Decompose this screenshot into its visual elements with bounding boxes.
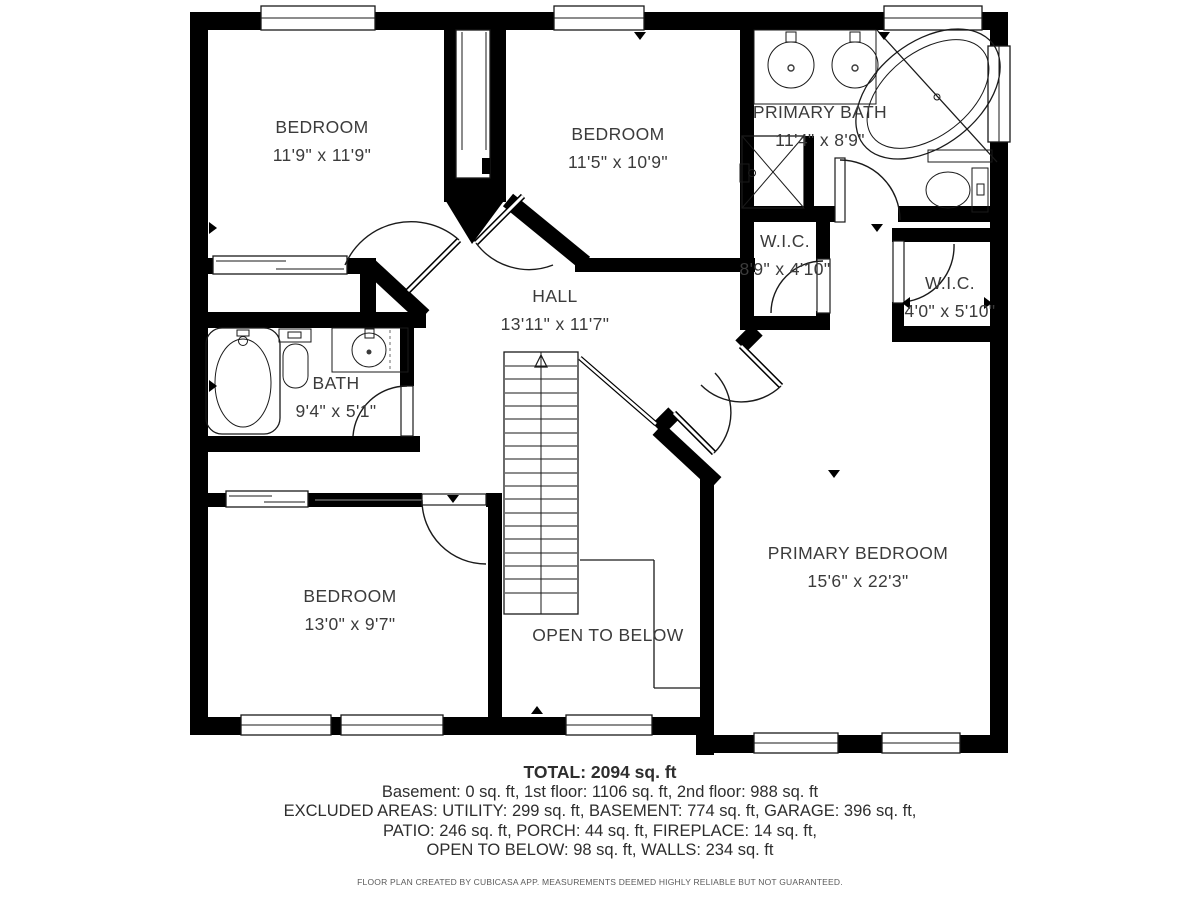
- room-name: PRIMARY BATH: [753, 98, 887, 126]
- window: [241, 715, 331, 735]
- window: [261, 6, 375, 30]
- room-name: BEDROOM: [568, 120, 668, 148]
- room-dims: 8'9" x 4'10": [739, 255, 830, 283]
- area-summary: TOTAL: 2094 sq. ft Basement: 0 sq. ft, 1…: [0, 763, 1200, 892]
- room-name: BATH: [296, 369, 377, 397]
- room-name: OPEN TO BELOW: [532, 621, 683, 649]
- door: [422, 494, 486, 564]
- room-dims: 13'0" x 9'7": [303, 610, 396, 638]
- excluded-areas-line-2: PATIO: 246 sq. ft, PORCH: 44 sq. ft, FIR…: [0, 822, 1200, 842]
- room-dims: 4'0" x 5'10": [904, 297, 995, 325]
- excluded-areas-line-1: EXCLUDED AREAS: UTILITY: 299 sq. ft, BAS…: [0, 802, 1200, 822]
- room-name: BEDROOM: [273, 113, 372, 141]
- room-name: W.I.C.: [904, 269, 995, 297]
- wall-channel: [456, 30, 490, 178]
- bathtub-figure: [206, 328, 280, 434]
- sliding-door: [213, 256, 347, 274]
- room-label-hall: HALL 13'11" x 11'7": [501, 282, 610, 338]
- room-label-bath: BATH 9'4" x 5'1": [296, 369, 377, 425]
- sink-figure: [332, 328, 408, 372]
- room-label-wic-1: W.I.C. 8'9" x 4'10": [739, 227, 830, 283]
- room-dims: 11'4" x 8'9": [753, 126, 887, 154]
- room-dims: 13'11" x 11'7": [501, 310, 610, 338]
- disclaimer-text: FLOOR PLAN CREATED BY CUBICASA APP. MEAS…: [0, 873, 1200, 893]
- room-dims: 15'6" x 22'3": [768, 567, 948, 595]
- toilet-figure: [926, 168, 988, 212]
- room-label-primary-bedroom: PRIMARY BEDROOM 15'6" x 22'3": [768, 539, 948, 595]
- window: [566, 715, 652, 735]
- sliding-door: [226, 491, 308, 507]
- window: [554, 6, 644, 30]
- window: [341, 715, 443, 735]
- room-dims: 9'4" x 5'1": [296, 397, 377, 425]
- floors-area-line: Basement: 0 sq. ft, 1st floor: 1106 sq. …: [0, 783, 1200, 803]
- room-label-open-to-below: OPEN TO BELOW: [532, 621, 683, 649]
- room-label-bedroom-2: BEDROOM 11'5" x 10'9": [568, 120, 668, 176]
- window: [884, 6, 982, 30]
- double-door: [674, 346, 781, 453]
- room-label-bedroom-3: BEDROOM 13'0" x 9'7": [303, 582, 396, 638]
- floor-plan-page: BEDROOM 11'9" x 11'9" BEDROOM 11'5" x 10…: [0, 0, 1200, 900]
- room-label-primary-bath: PRIMARY BATH 11'4" x 8'9": [753, 98, 887, 154]
- door: [835, 158, 900, 222]
- total-area: TOTAL: 2094 sq. ft: [0, 763, 1200, 783]
- window: [988, 46, 1010, 142]
- room-name: PRIMARY BEDROOM: [768, 539, 948, 567]
- room-dims: 11'5" x 10'9": [568, 148, 668, 176]
- room-name: W.I.C.: [739, 227, 830, 255]
- window: [754, 733, 838, 753]
- room-name: HALL: [501, 282, 610, 310]
- doors-group: [345, 158, 954, 564]
- railing: [580, 358, 656, 424]
- room-dims: 11'9" x 11'9": [273, 141, 372, 169]
- room-label-wic-2: W.I.C. 4'0" x 5'10": [904, 269, 995, 325]
- double-vanity-figure: [754, 30, 878, 104]
- excluded-areas-line-3: OPEN TO BELOW: 98 sq. ft, WALLS: 234 sq.…: [0, 841, 1200, 861]
- window: [882, 733, 960, 753]
- room-name: BEDROOM: [303, 582, 396, 610]
- room-label-bedroom-1: BEDROOM 11'9" x 11'9": [273, 113, 372, 169]
